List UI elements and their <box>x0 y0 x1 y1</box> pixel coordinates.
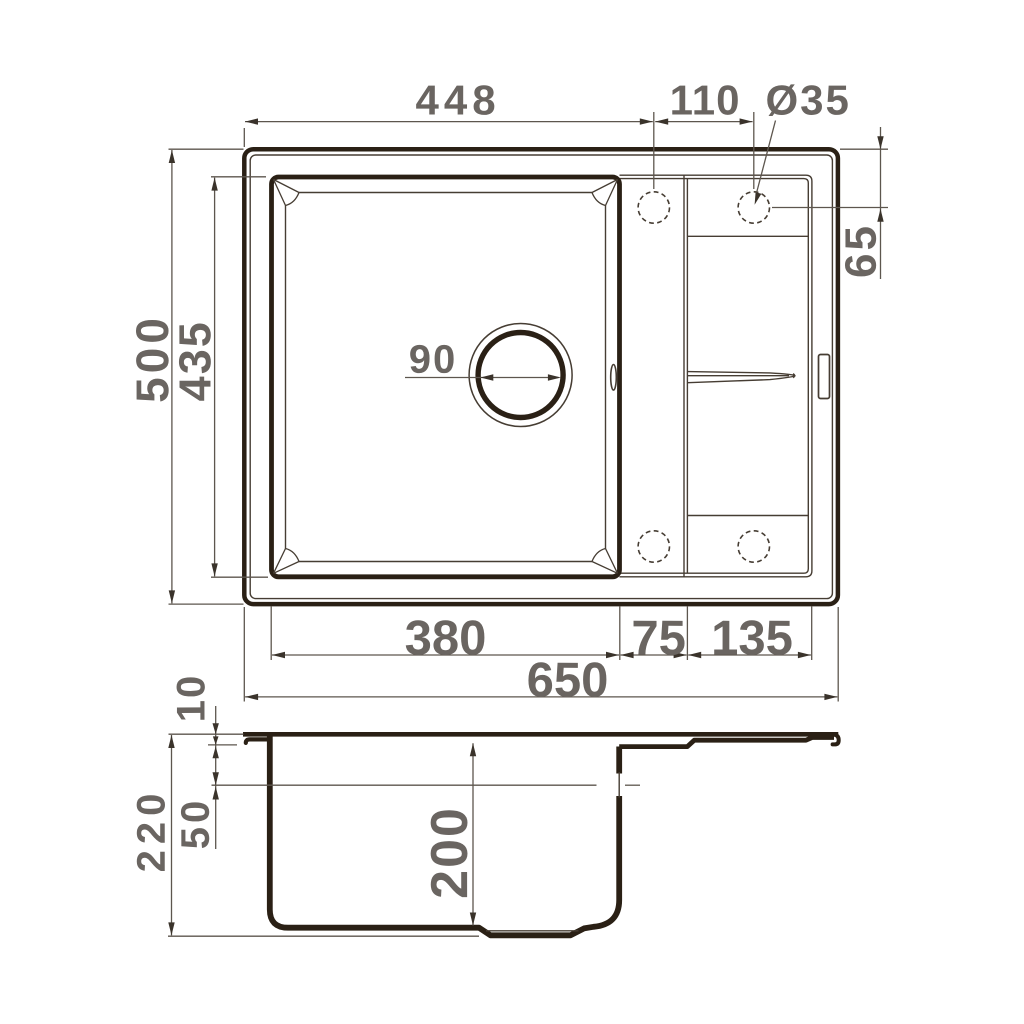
svg-text:435: 435 <box>169 320 220 401</box>
svg-text:448: 448 <box>416 76 501 123</box>
svg-text:50: 50 <box>174 797 218 850</box>
svg-text:75: 75 <box>631 611 686 665</box>
svg-text:380: 380 <box>405 611 487 665</box>
svg-text:Ø35: Ø35 <box>765 76 850 123</box>
svg-text:650: 650 <box>527 653 609 707</box>
svg-text:90: 90 <box>409 338 458 382</box>
svg-text:110: 110 <box>670 76 741 123</box>
svg-text:65: 65 <box>837 223 886 278</box>
svg-text:200: 200 <box>421 806 479 899</box>
svg-text:10: 10 <box>169 674 213 723</box>
svg-text:220: 220 <box>130 788 174 873</box>
svg-text:135: 135 <box>711 611 793 665</box>
